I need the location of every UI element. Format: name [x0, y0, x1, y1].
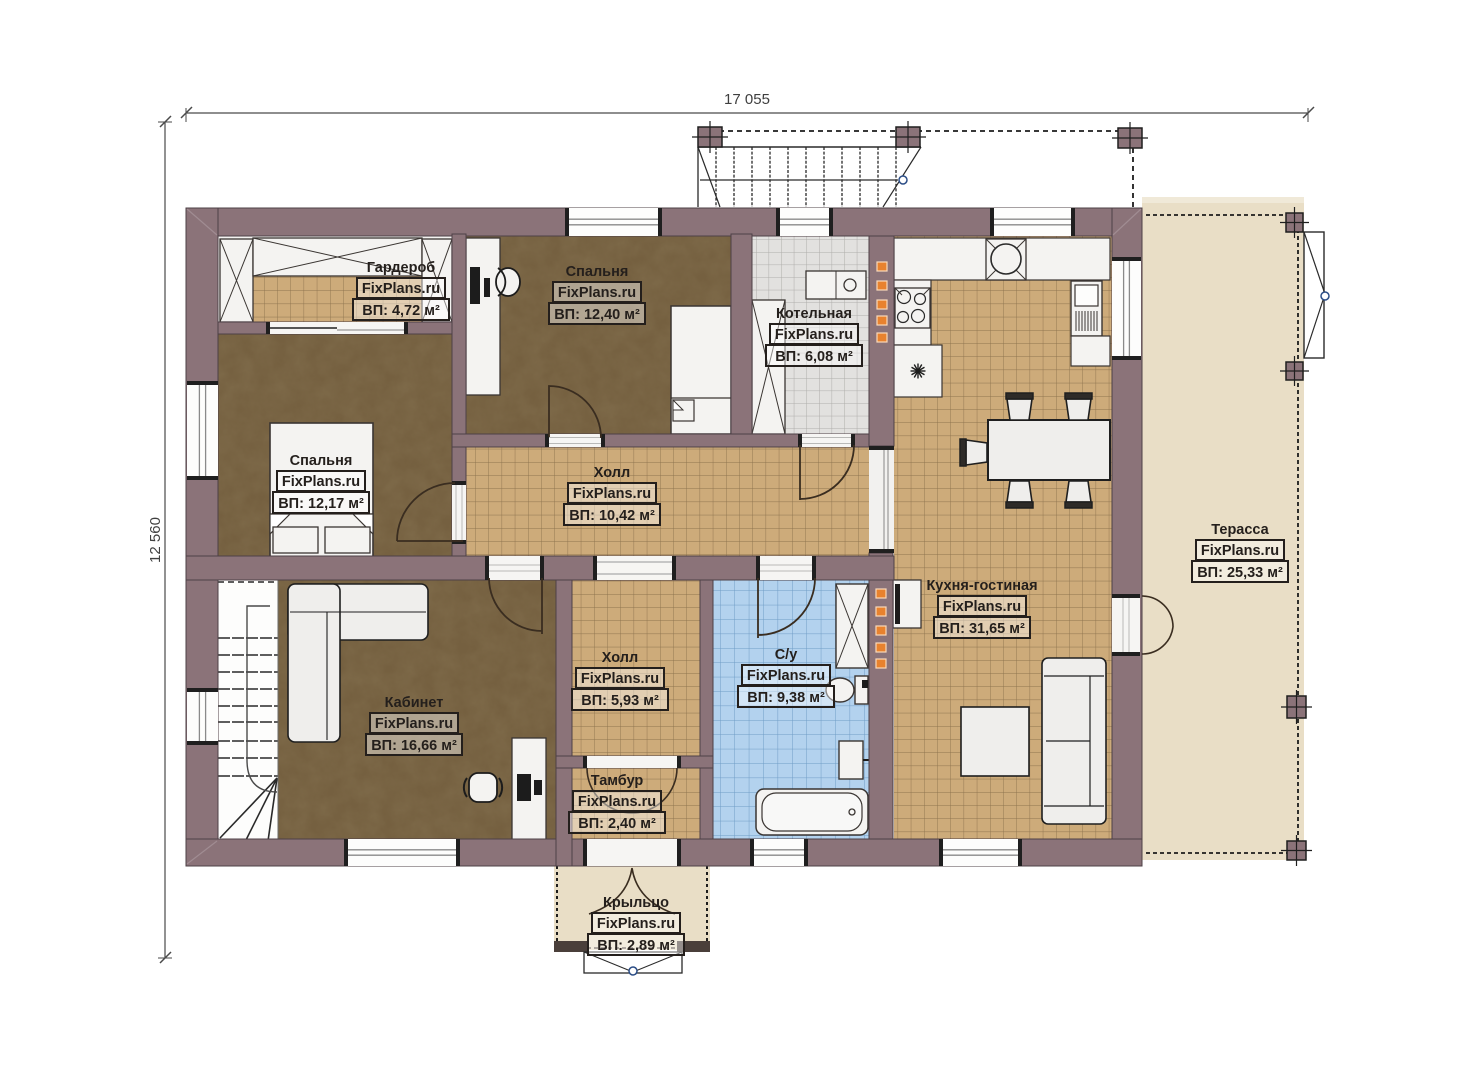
- svg-text:ВП: 6,08 м²: ВП: 6,08 м²: [775, 349, 853, 365]
- svg-text:ВП: 4,72 м²: ВП: 4,72 м²: [362, 303, 440, 319]
- svg-text:FixPlans.ru: FixPlans.ru: [775, 327, 853, 343]
- svg-text:Гардероб: Гардероб: [367, 260, 436, 276]
- svg-text:Крыльцо: Крыльцо: [603, 895, 669, 911]
- svg-text:ВП: 16,66 м²: ВП: 16,66 м²: [371, 738, 457, 754]
- svg-text:17 055: 17 055: [724, 91, 770, 108]
- svg-text:FixPlans.ru: FixPlans.ru: [581, 671, 659, 687]
- svg-text:Кабинет: Кабинет: [385, 695, 444, 711]
- svg-text:Спальня: Спальня: [290, 453, 353, 469]
- svg-text:12 560: 12 560: [147, 517, 164, 563]
- svg-text:Спальня: Спальня: [566, 264, 629, 280]
- svg-text:FixPlans.ru: FixPlans.ru: [597, 916, 675, 932]
- svg-text:FixPlans.ru: FixPlans.ru: [558, 285, 636, 301]
- svg-text:FixPlans.ru: FixPlans.ru: [282, 474, 360, 490]
- svg-text:ВП: 9,38 м²: ВП: 9,38 м²: [747, 690, 825, 706]
- svg-text:FixPlans.ru: FixPlans.ru: [1201, 543, 1279, 559]
- svg-text:FixPlans.ru: FixPlans.ru: [943, 599, 1021, 615]
- svg-text:FixPlans.ru: FixPlans.ru: [747, 668, 825, 684]
- svg-text:ВП: 31,65 м²: ВП: 31,65 м²: [939, 621, 1025, 637]
- svg-text:Холл: Холл: [602, 650, 638, 666]
- svg-text:Терасса: Терасса: [1211, 522, 1269, 538]
- svg-text:Кухня-гостиная: Кухня-гостиная: [926, 578, 1037, 594]
- svg-text:Тамбур: Тамбур: [591, 773, 644, 789]
- svg-text:С/у: С/у: [775, 647, 798, 663]
- svg-text:ВП: 10,42 м²: ВП: 10,42 м²: [569, 508, 655, 524]
- svg-text:FixPlans.ru: FixPlans.ru: [578, 794, 656, 810]
- svg-text:FixPlans.ru: FixPlans.ru: [573, 486, 651, 502]
- svg-text:ВП: 25,33 м²: ВП: 25,33 м²: [1197, 565, 1283, 581]
- svg-text:ВП: 12,40 м²: ВП: 12,40 м²: [554, 307, 640, 323]
- svg-text:Котельная: Котельная: [776, 306, 852, 322]
- svg-text:ВП: 12,17 м²: ВП: 12,17 м²: [278, 496, 364, 512]
- svg-text:ВП: 5,93 м²: ВП: 5,93 м²: [581, 693, 659, 709]
- svg-text:ВП: 2,89 м²: ВП: 2,89 м²: [597, 938, 675, 954]
- svg-text:ВП: 2,40 м²: ВП: 2,40 м²: [578, 816, 656, 832]
- svg-text:FixPlans.ru: FixPlans.ru: [362, 281, 440, 297]
- svg-text:FixPlans.ru: FixPlans.ru: [375, 716, 453, 732]
- svg-text:Холл: Холл: [594, 465, 630, 481]
